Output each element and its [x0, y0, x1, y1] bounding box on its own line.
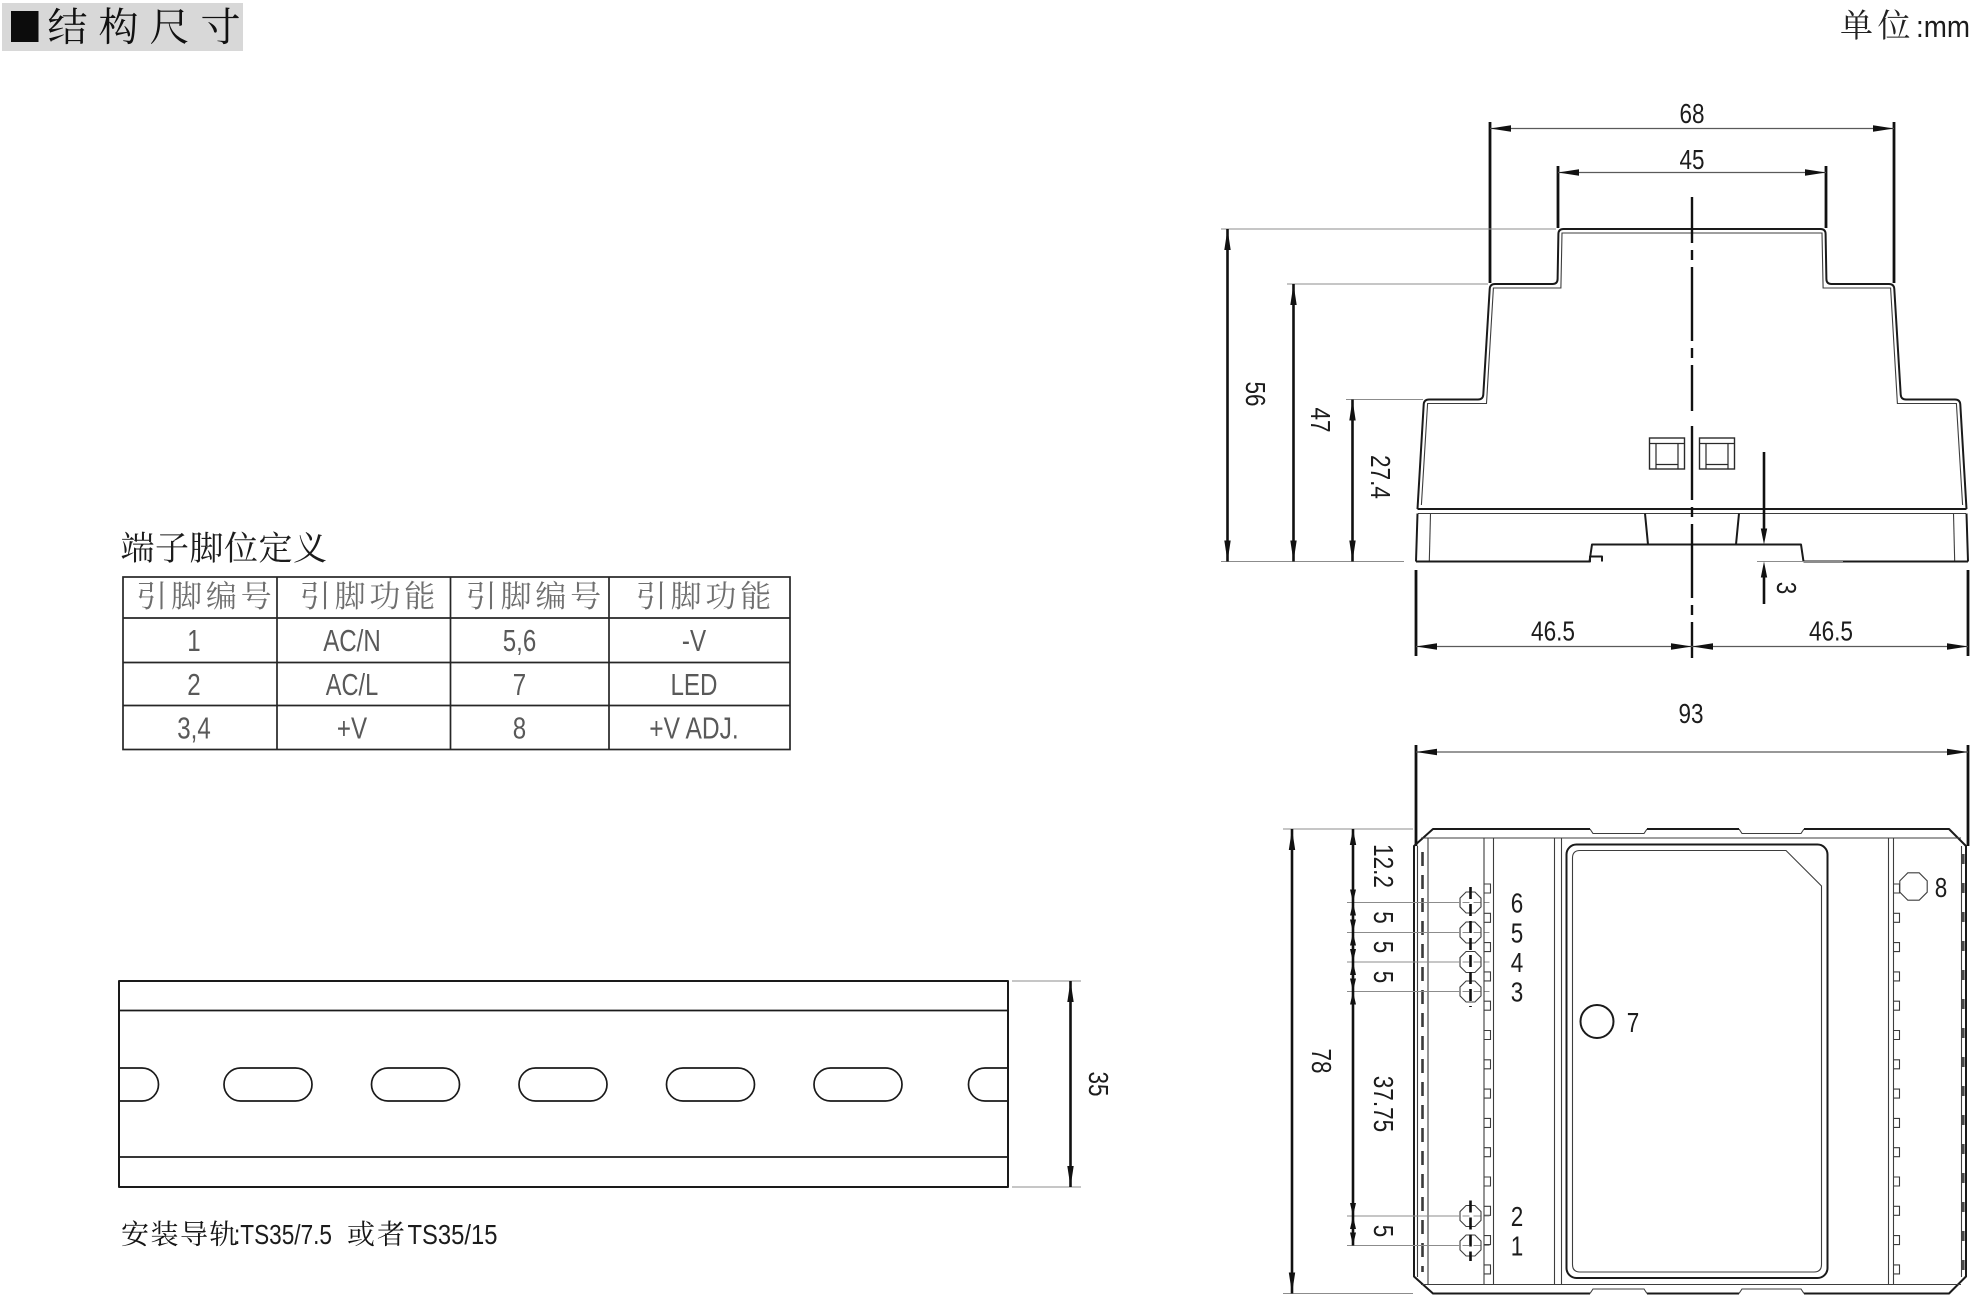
svg-text:-V: -V: [682, 623, 706, 658]
svg-text:3: 3: [1771, 582, 1802, 595]
svg-text:27.4: 27.4: [1365, 455, 1396, 499]
svg-text:4: 4: [1511, 947, 1524, 978]
svg-text:LED: LED: [671, 667, 718, 702]
svg-text:AC/N: AC/N: [323, 623, 381, 658]
svg-text:1: 1: [187, 623, 200, 658]
svg-text:35: 35: [1083, 1072, 1114, 1097]
svg-text:1: 1: [1511, 1231, 1524, 1262]
svg-text:8: 8: [1935, 872, 1948, 903]
svg-text:47: 47: [1305, 408, 1336, 433]
svg-text:68: 68: [1680, 98, 1705, 129]
svg-text:7: 7: [1627, 1007, 1640, 1038]
svg-text:93: 93: [1679, 698, 1704, 729]
svg-text:12.2: 12.2: [1368, 844, 1399, 888]
svg-text:46.5: 46.5: [1531, 616, 1575, 647]
svg-text:+V ADJ.: +V ADJ.: [649, 711, 738, 746]
svg-text:6: 6: [1511, 888, 1524, 919]
svg-text:5,6: 5,6: [503, 623, 537, 658]
svg-text:+V: +V: [337, 711, 367, 746]
svg-text:3,4: 3,4: [177, 711, 211, 746]
svg-text:5: 5: [1368, 911, 1399, 924]
svg-text:8: 8: [513, 711, 526, 746]
svg-text:2: 2: [187, 667, 200, 702]
svg-text::mm: :mm: [1916, 9, 1970, 44]
svg-text:7: 7: [513, 667, 526, 702]
svg-text:56: 56: [1240, 382, 1271, 407]
svg-text:AC/L: AC/L: [326, 667, 378, 702]
svg-text:TS35/15: TS35/15: [408, 1219, 498, 1250]
svg-text:5: 5: [1368, 941, 1399, 954]
svg-text:37.75: 37.75: [1368, 1076, 1399, 1133]
svg-text:3: 3: [1511, 977, 1524, 1008]
svg-text:5: 5: [1368, 1225, 1399, 1238]
svg-text:78: 78: [1306, 1049, 1337, 1074]
svg-text:2: 2: [1511, 1201, 1524, 1232]
svg-text:45: 45: [1680, 144, 1705, 175]
svg-text:5: 5: [1368, 971, 1399, 984]
svg-text:5: 5: [1511, 918, 1524, 949]
svg-text:46.5: 46.5: [1809, 616, 1853, 647]
svg-text::TS35/7.5: :TS35/7.5: [234, 1219, 332, 1250]
